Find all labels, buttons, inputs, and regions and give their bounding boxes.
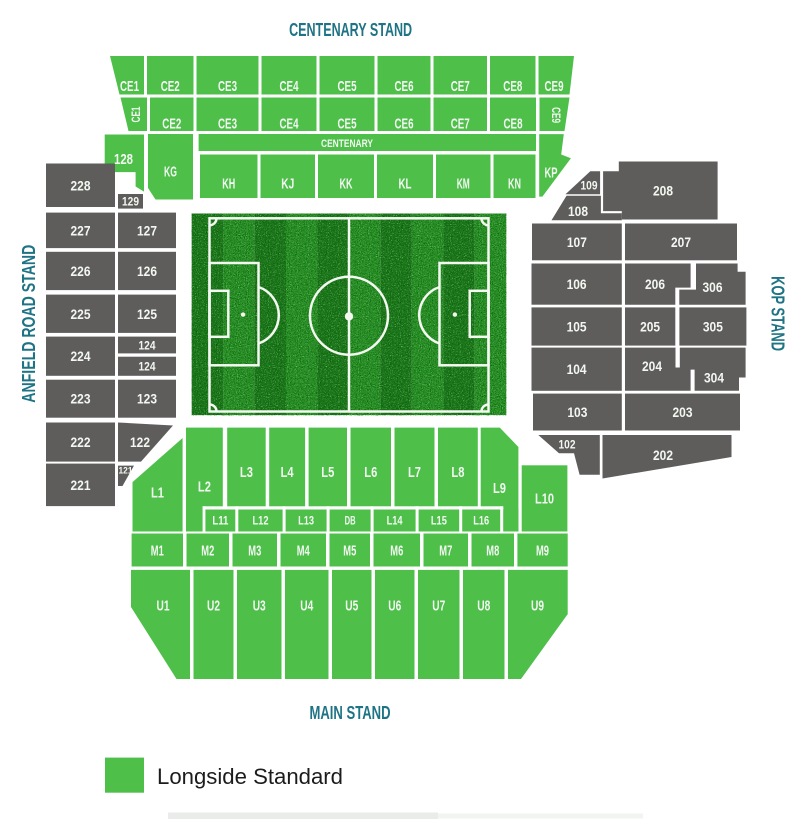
svg-text:CE4: CE4 bbox=[280, 115, 299, 132]
svg-text:KH: KH bbox=[222, 175, 235, 192]
svg-text:M7: M7 bbox=[439, 542, 452, 559]
svg-text:CE7: CE7 bbox=[451, 115, 470, 132]
svg-text:L11: L11 bbox=[212, 514, 228, 528]
svg-text:226: 226 bbox=[71, 263, 91, 279]
svg-text:206: 206 bbox=[645, 276, 665, 292]
svg-text:CENTENARY STAND: CENTENARY STAND bbox=[289, 20, 412, 40]
svg-text:L14: L14 bbox=[387, 514, 403, 528]
svg-text:M1: M1 bbox=[151, 542, 164, 559]
svg-text:222: 222 bbox=[71, 434, 91, 450]
svg-text:208: 208 bbox=[653, 183, 673, 199]
svg-text:ANFIELD ROAD STAND: ANFIELD ROAD STAND bbox=[19, 245, 39, 403]
svg-text:CE2: CE2 bbox=[162, 115, 181, 132]
svg-text:KK: KK bbox=[340, 175, 353, 192]
svg-text:U8: U8 bbox=[477, 597, 490, 614]
svg-text:203: 203 bbox=[673, 404, 693, 420]
svg-text:L13: L13 bbox=[298, 514, 314, 528]
svg-text:CE3: CE3 bbox=[218, 78, 237, 95]
svg-text:L15: L15 bbox=[431, 514, 447, 528]
svg-text:L7: L7 bbox=[408, 464, 421, 481]
svg-text:122: 122 bbox=[130, 434, 150, 450]
svg-text:205: 205 bbox=[640, 319, 660, 335]
svg-text:U9: U9 bbox=[531, 597, 544, 614]
svg-text:CE5: CE5 bbox=[338, 78, 357, 95]
svg-text:124: 124 bbox=[139, 360, 156, 374]
svg-text:KP: KP bbox=[545, 164, 558, 181]
svg-text:L12: L12 bbox=[253, 514, 269, 528]
svg-text:121: 121 bbox=[119, 466, 134, 477]
svg-text:L1: L1 bbox=[151, 484, 164, 501]
svg-text:KG: KG bbox=[164, 163, 177, 180]
svg-text:KM: KM bbox=[457, 175, 470, 192]
svg-text:CE1: CE1 bbox=[120, 78, 139, 95]
svg-text:207: 207 bbox=[671, 234, 691, 250]
svg-text:128: 128 bbox=[114, 151, 133, 168]
svg-text:CE4: CE4 bbox=[280, 78, 299, 95]
svg-text:M9: M9 bbox=[536, 542, 549, 559]
svg-text:104: 104 bbox=[567, 361, 587, 377]
svg-text:105: 105 bbox=[567, 319, 587, 335]
svg-text:L6: L6 bbox=[364, 464, 377, 481]
svg-text:221: 221 bbox=[71, 477, 91, 493]
svg-text:CENTENARY: CENTENARY bbox=[321, 138, 374, 150]
svg-text:227: 227 bbox=[71, 222, 91, 238]
svg-text:CE1: CE1 bbox=[129, 106, 143, 122]
svg-text:CE8: CE8 bbox=[503, 78, 522, 95]
svg-text:108: 108 bbox=[568, 203, 588, 219]
svg-text:CE9: CE9 bbox=[545, 78, 564, 95]
svg-text:CE5: CE5 bbox=[338, 115, 357, 132]
svg-text:U7: U7 bbox=[432, 597, 445, 614]
svg-text:KJ: KJ bbox=[281, 175, 294, 192]
svg-text:L9: L9 bbox=[493, 480, 506, 497]
svg-text:CE2: CE2 bbox=[161, 78, 180, 95]
svg-text:CE6: CE6 bbox=[395, 78, 414, 95]
svg-text:M8: M8 bbox=[486, 542, 499, 559]
svg-text:L4: L4 bbox=[281, 464, 294, 481]
svg-text:306: 306 bbox=[703, 279, 723, 295]
svg-text:CE7: CE7 bbox=[451, 78, 470, 95]
svg-text:127: 127 bbox=[137, 222, 157, 238]
svg-text:204: 204 bbox=[642, 358, 662, 374]
svg-text:KL: KL bbox=[399, 175, 412, 192]
svg-text:M2: M2 bbox=[201, 542, 214, 559]
svg-text:109: 109 bbox=[581, 178, 598, 192]
svg-text:CE6: CE6 bbox=[395, 115, 414, 132]
svg-text:129: 129 bbox=[122, 195, 139, 209]
svg-text:228: 228 bbox=[71, 177, 91, 193]
svg-text:CE9: CE9 bbox=[549, 107, 563, 123]
svg-text:225: 225 bbox=[71, 306, 91, 322]
svg-text:KOP STAND: KOP STAND bbox=[768, 276, 788, 351]
svg-text:L16: L16 bbox=[473, 514, 489, 528]
svg-text:123: 123 bbox=[137, 391, 157, 407]
svg-text:102: 102 bbox=[559, 437, 576, 451]
svg-text:124: 124 bbox=[139, 338, 156, 352]
svg-text:M4: M4 bbox=[297, 542, 310, 559]
svg-text:106: 106 bbox=[567, 276, 587, 292]
svg-text:103: 103 bbox=[567, 404, 587, 420]
svg-text:223: 223 bbox=[71, 391, 91, 407]
svg-text:202: 202 bbox=[653, 447, 673, 463]
svg-text:MAIN STAND: MAIN STAND bbox=[310, 703, 391, 723]
svg-text:U5: U5 bbox=[345, 597, 358, 614]
svg-text:U3: U3 bbox=[253, 597, 266, 614]
svg-text:224: 224 bbox=[71, 348, 91, 364]
svg-text:DB: DB bbox=[345, 514, 356, 528]
svg-text:L5: L5 bbox=[321, 464, 334, 481]
svg-text:M5: M5 bbox=[343, 542, 356, 559]
svg-text:CE3: CE3 bbox=[218, 115, 237, 132]
svg-text:M3: M3 bbox=[248, 542, 261, 559]
svg-text:L3: L3 bbox=[240, 464, 253, 481]
svg-text:U2: U2 bbox=[207, 597, 220, 614]
svg-text:107: 107 bbox=[567, 234, 587, 250]
svg-text:L8: L8 bbox=[451, 464, 464, 481]
svg-text:125: 125 bbox=[137, 306, 157, 322]
svg-text:305: 305 bbox=[703, 319, 723, 335]
svg-text:L2: L2 bbox=[198, 478, 211, 495]
svg-text:M6: M6 bbox=[390, 542, 403, 559]
svg-text:126: 126 bbox=[137, 263, 157, 279]
svg-text:U6: U6 bbox=[388, 597, 401, 614]
svg-text:U1: U1 bbox=[157, 597, 170, 614]
svg-text:304: 304 bbox=[704, 370, 724, 386]
svg-text:CE8: CE8 bbox=[504, 115, 523, 132]
svg-text:Longside Standard: Longside Standard bbox=[157, 764, 343, 789]
svg-text:U4: U4 bbox=[300, 597, 313, 614]
svg-text:L10: L10 bbox=[535, 490, 554, 507]
svg-text:KN: KN bbox=[508, 175, 521, 192]
